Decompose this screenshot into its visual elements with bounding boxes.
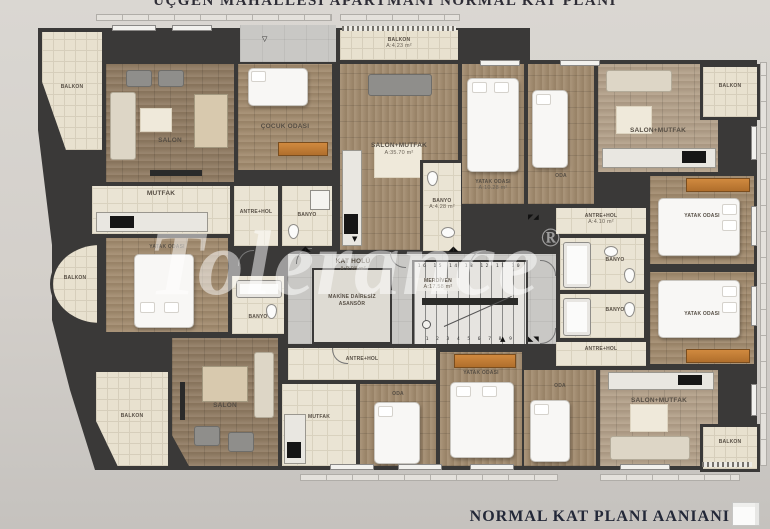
dimension-strip bbox=[600, 474, 740, 481]
pillow bbox=[494, 82, 509, 93]
armchair bbox=[126, 70, 152, 87]
sofa bbox=[110, 92, 136, 160]
dimension-strip bbox=[96, 14, 332, 21]
room-label: BANYO bbox=[586, 307, 644, 313]
pillow bbox=[722, 286, 737, 297]
elevator: MAKİNE DAİRESİZASANSÖR bbox=[312, 268, 392, 344]
rug bbox=[140, 108, 172, 132]
window bbox=[330, 464, 374, 470]
room-label: ANTRE+HOL bbox=[234, 209, 278, 215]
armchair bbox=[228, 432, 254, 452]
door-wedge-icon: ◢◣ bbox=[300, 246, 311, 253]
room-label: ANTRE+HOL bbox=[288, 356, 436, 362]
sink bbox=[604, 246, 618, 257]
toilet bbox=[624, 268, 635, 283]
room-balkon-top: BALKONA:4.23 m² bbox=[340, 30, 458, 60]
room-mutfak-a5: MUTFAK bbox=[282, 384, 356, 466]
room-yatak-odasi-a4-right: YATAK ODASI bbox=[650, 272, 754, 364]
room-label: ODA bbox=[528, 173, 594, 179]
toilet bbox=[427, 171, 438, 186]
room-label: BANYOA:4.28 m² bbox=[423, 198, 461, 211]
room-salon-a6: SALON bbox=[172, 338, 278, 466]
pillow bbox=[164, 302, 179, 313]
room-label: BALKON bbox=[42, 84, 102, 90]
room-label: YATAK ODASI bbox=[650, 311, 754, 317]
stairs-label: MERDİVENA:17.58 m² bbox=[416, 278, 460, 291]
room-banyo-mid: BANYOA:4.28 m² bbox=[420, 160, 464, 254]
room-label: BALKON bbox=[703, 439, 757, 445]
window bbox=[560, 60, 600, 66]
room-banyo-a4: BANYO bbox=[560, 294, 644, 338]
armchair bbox=[158, 70, 184, 87]
pillow bbox=[140, 302, 155, 313]
window bbox=[172, 25, 212, 31]
tv-unit bbox=[180, 382, 185, 420]
room-yatak-odasi-a3: YATAK ODASIA:10.28 m² bbox=[462, 64, 524, 204]
room-label: SALON bbox=[106, 137, 234, 145]
wardrobe bbox=[686, 178, 750, 192]
door-wedge-icon: ◢◣ bbox=[448, 246, 459, 253]
sofa bbox=[368, 74, 432, 96]
room-label: SALON+MUTFAK bbox=[600, 397, 718, 405]
room-label: BANYO bbox=[232, 314, 284, 320]
room-label: BANYO bbox=[586, 257, 644, 263]
room-label: BALKONA:4.23 m² bbox=[340, 37, 458, 50]
room-label: YATAK ODASI bbox=[650, 213, 754, 219]
room-label: ODA bbox=[524, 383, 596, 389]
room-label: MUTFAK bbox=[282, 414, 356, 420]
sofa bbox=[606, 70, 672, 92]
room-oda-a4: ODA bbox=[524, 370, 596, 466]
stove bbox=[344, 214, 358, 234]
room-antre-a4: ANTRE+HOL bbox=[556, 342, 646, 366]
stove bbox=[110, 216, 134, 228]
entry-arrow-icon: ▼ bbox=[352, 236, 357, 243]
wardrobe bbox=[454, 354, 516, 368]
room-oda-a3: ODA bbox=[528, 64, 594, 204]
room-label: YATAK ODASI bbox=[440, 370, 522, 376]
window bbox=[398, 464, 442, 470]
room-cocuk-odasi: ÇOCUK ODASI bbox=[238, 64, 332, 170]
door-wedge-icon: ◤◢ bbox=[528, 214, 539, 221]
corner-artifact bbox=[732, 502, 760, 526]
sink bbox=[441, 227, 455, 238]
window bbox=[620, 464, 670, 470]
room-banyo-a6: BANYO bbox=[232, 276, 284, 334]
floorplan-page: { "titles": { "top": "ÜÇGEN MAHALLESİ AP… bbox=[0, 0, 770, 529]
dining-table bbox=[202, 366, 248, 402]
window bbox=[112, 25, 156, 31]
door-wedge-icon: ◣◥ bbox=[528, 336, 539, 343]
pillow bbox=[536, 94, 551, 105]
room-label: SALON+MUTFAK bbox=[598, 127, 718, 135]
room-banyo-topleft: BANYO bbox=[282, 186, 332, 246]
room-antre-a5: ANTRE+HOL bbox=[288, 348, 436, 380]
room-label: BALKON bbox=[96, 413, 168, 419]
pillow bbox=[251, 71, 266, 82]
page-title: ÜÇGEN MAHALLESİ APARTMANI NORMAL KAT PLA… bbox=[153, 0, 617, 10]
room-label: BALKON bbox=[703, 83, 757, 89]
stairs: 16 15 14 13 12 11 10 1 2 3 4 5 6 7 8 9 M… bbox=[412, 260, 528, 346]
pillow bbox=[378, 406, 393, 417]
window bbox=[470, 464, 514, 470]
room-label: MUTFAK bbox=[92, 190, 230, 198]
room-mutfak-topleft: MUTFAK bbox=[92, 186, 230, 234]
room-oda-a5: ODA bbox=[360, 384, 436, 466]
room-label: SALON bbox=[172, 402, 278, 410]
pillow bbox=[722, 220, 737, 231]
tv-unit bbox=[150, 170, 202, 176]
bench bbox=[278, 142, 328, 156]
pillow bbox=[456, 386, 471, 397]
room-label: BANYO bbox=[282, 212, 332, 218]
balcony-railing bbox=[342, 26, 456, 31]
room-label: ANTRE+HOLA:4.10 m² bbox=[556, 213, 646, 226]
stove bbox=[287, 442, 301, 458]
room-label: ODA bbox=[360, 391, 436, 397]
bathtub bbox=[563, 298, 591, 336]
room-yatak-odasi-a5: YATAK ODASI bbox=[440, 352, 522, 466]
room-antre-a3: ANTRE+HOLA:4.10 m² bbox=[556, 208, 646, 234]
window bbox=[480, 60, 520, 66]
room-label: YATAK ODASIA:10.28 m² bbox=[462, 179, 524, 192]
window bbox=[751, 126, 757, 160]
wardrobe bbox=[686, 349, 750, 363]
armchair bbox=[194, 426, 220, 446]
pillow bbox=[472, 82, 487, 93]
dimension-strip bbox=[300, 474, 558, 481]
bed bbox=[134, 254, 194, 328]
window bbox=[751, 384, 757, 416]
drawing-title: NORMAL KAT PLANI AANIANI bbox=[470, 508, 730, 526]
stove bbox=[682, 151, 706, 163]
window bbox=[751, 286, 757, 326]
elevator-label: MAKİNE DAİRESİZASANSÖR bbox=[314, 294, 390, 307]
shaft-mark-icon: ▽ bbox=[262, 36, 267, 43]
room-banyo-a3: BANYO bbox=[560, 238, 644, 290]
light-shaft bbox=[240, 25, 336, 62]
room-label: SALON+MUTFAKA:35.70 m² bbox=[340, 142, 458, 157]
room-antre-topleft: ANTRE+HOL bbox=[234, 186, 278, 246]
dimension-strip bbox=[760, 62, 767, 466]
dimension-strip bbox=[340, 14, 460, 21]
room-salon-topleft: SALON bbox=[106, 64, 234, 182]
sofa bbox=[610, 436, 690, 460]
room-label: ÇOCUK ODASI bbox=[238, 123, 332, 131]
room-label: BALKON bbox=[53, 275, 97, 281]
bathtub bbox=[236, 280, 282, 298]
room-balkon-topright: BALKON bbox=[700, 64, 760, 120]
balcony-railing bbox=[702, 462, 752, 467]
room-yatak-odasi-a6: YATAK ODASI bbox=[106, 238, 228, 332]
stair-start-marker bbox=[422, 320, 431, 329]
stove bbox=[678, 375, 702, 385]
rug bbox=[630, 404, 668, 432]
toilet bbox=[288, 224, 299, 239]
stair-numbers-lower: 1 2 3 4 5 6 7 8 9 bbox=[414, 337, 526, 342]
entry-arrow-icon: ▲ bbox=[500, 336, 505, 343]
shower bbox=[310, 190, 330, 210]
bathtub bbox=[563, 242, 591, 288]
room-label: YATAK ODASI bbox=[106, 244, 228, 250]
room-label: ANTRE+HOL bbox=[556, 346, 646, 352]
room-yatak-odasi-a3-right: YATAK ODASI bbox=[650, 176, 754, 264]
pillow bbox=[534, 404, 549, 415]
pillow bbox=[482, 386, 497, 397]
